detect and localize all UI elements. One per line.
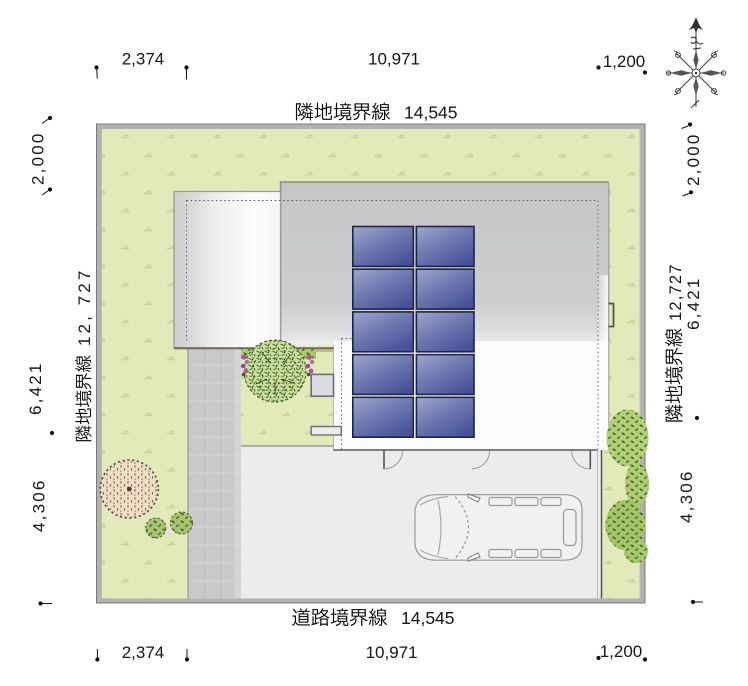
- svg-text:6,421: 6,421: [26, 361, 45, 415]
- svg-text:10,971: 10,971: [366, 643, 418, 662]
- svg-text:2,000: 2,000: [29, 131, 48, 185]
- svg-text:12, 727: 12, 727: [75, 268, 94, 346]
- svg-text:1,200: 1,200: [600, 642, 643, 661]
- svg-text:2,374: 2,374: [122, 50, 165, 69]
- svg-text:4,306: 4,306: [29, 478, 48, 532]
- svg-text:14,545: 14,545: [404, 103, 458, 123]
- svg-text:6,421: 6,421: [684, 276, 703, 330]
- svg-text:2,000: 2,000: [684, 132, 703, 186]
- svg-text:4,306: 4,306: [677, 469, 696, 523]
- svg-text:12,727: 12,727: [667, 263, 685, 321]
- svg-text:1,200: 1,200: [603, 52, 646, 71]
- svg-text:2,374: 2,374: [122, 643, 165, 662]
- svg-text:10,971: 10,971: [368, 50, 420, 69]
- svg-text:14,545: 14,545: [401, 608, 455, 628]
